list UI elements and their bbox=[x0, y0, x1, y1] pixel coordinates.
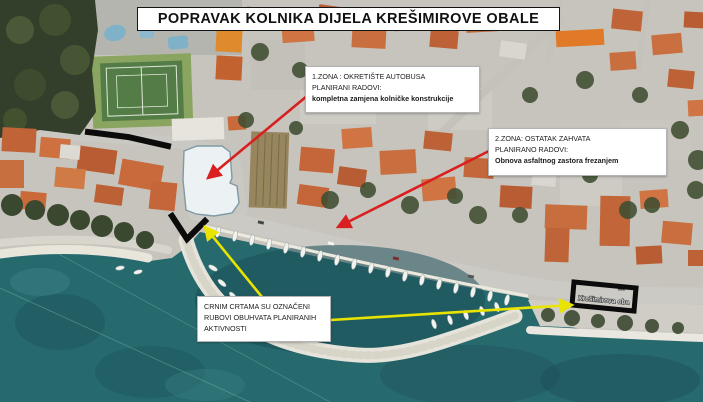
zone2-note-box: 2.ZONA: OSTATAK ZAHVATA PLANIRANO RADOVI… bbox=[488, 128, 667, 176]
zone2-line3: Obnova asfaltnog zastora frezanjem bbox=[495, 155, 660, 166]
legend-line1: CRNIM CRTAMA SU OZNAČENI bbox=[204, 301, 324, 312]
tennis-court bbox=[91, 53, 193, 128]
garden-field bbox=[249, 131, 290, 208]
zone1-line3: kompletna zamjena kolničke konstrukcije bbox=[312, 93, 473, 104]
annotated-aerial-map: Krešimirova oba POPRAVAK KOLNIKA DIJELA … bbox=[0, 0, 703, 402]
trees-topleft bbox=[0, 0, 98, 138]
aerial-photo: Krešimirova oba bbox=[0, 0, 703, 402]
zone1-line2: PLANIRANI RADOVI: bbox=[312, 82, 473, 93]
zone2-line2: PLANIRANO RADOVI: bbox=[495, 144, 660, 155]
zone1-line1: 1.ZONA : OKRETIŠTE AUTOBUSA bbox=[312, 71, 473, 82]
page-title: POPRAVAK KOLNIKA DIJELA KREŠIMIROVE OBAL… bbox=[137, 7, 560, 31]
legend-note-box: CRNIM CRTAMA SU OZNAČENI RUBOVI OBUHVATA… bbox=[197, 296, 331, 342]
zone2-line1: 2.ZONA: OSTATAK ZAHVATA bbox=[495, 133, 660, 144]
legend-line3: AKTIVNOSTI bbox=[204, 323, 324, 334]
zone1-note-box: 1.ZONA : OKRETIŠTE AUTOBUSA PLANIRANI RA… bbox=[305, 66, 480, 113]
legend-line2: RUBOVI OBUHVATA PLANIRANIH bbox=[204, 312, 324, 323]
zone1-highlight-polygon bbox=[183, 146, 239, 216]
